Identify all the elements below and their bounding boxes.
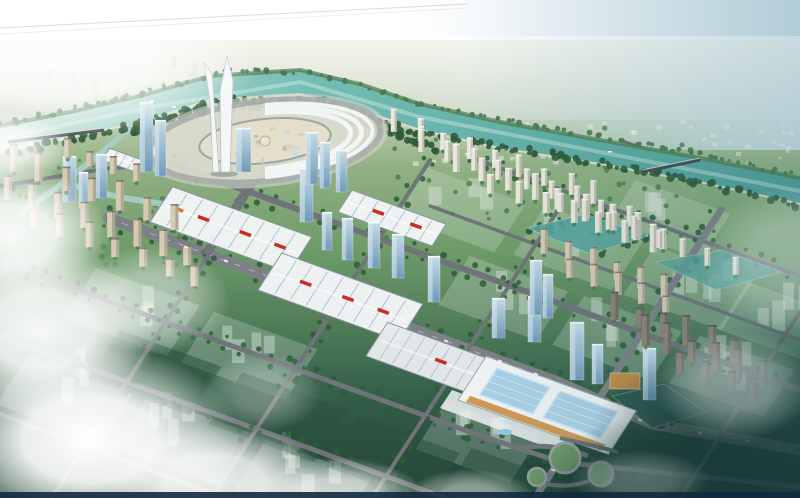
plaza-building <box>265 129 270 133</box>
street-tree <box>341 389 348 396</box>
bank-tree <box>359 82 363 86</box>
tower-lit-face <box>96 154 100 198</box>
street-tree <box>464 274 470 280</box>
bank-tree <box>292 72 295 75</box>
tower-lit-face <box>322 212 326 250</box>
bank-tree <box>342 79 348 85</box>
bank-tree <box>412 131 418 137</box>
tower-roof <box>86 151 93 153</box>
city-rendering <box>0 0 800 498</box>
bank-tree <box>309 71 312 74</box>
tower-shade <box>422 129 424 152</box>
street-tree <box>333 448 339 454</box>
tower-roof <box>391 109 397 111</box>
bank-tree <box>282 71 287 76</box>
bank-tree <box>418 101 424 107</box>
tower-shade <box>395 109 397 132</box>
street-tree <box>404 413 408 417</box>
screenshot <box>0 0 800 498</box>
street-tree <box>319 339 323 343</box>
street-tree <box>256 346 261 351</box>
bank-tree <box>395 131 405 141</box>
tower-cap <box>320 142 330 144</box>
plaza-building <box>284 145 293 149</box>
street-tree <box>220 346 225 351</box>
street-tree <box>285 430 290 435</box>
tower-roof <box>440 133 446 135</box>
bank-tree <box>433 104 436 107</box>
street-tree <box>391 452 397 458</box>
street-tree <box>362 252 366 256</box>
plaza-building <box>254 135 258 138</box>
tree <box>384 235 389 240</box>
plaza-building <box>269 144 278 148</box>
tree <box>78 159 81 162</box>
street-tree <box>292 201 295 204</box>
tower-cap <box>342 218 353 220</box>
street-tree <box>407 402 412 407</box>
tower-roof <box>159 229 167 231</box>
ghost-building <box>429 187 442 205</box>
street-tree <box>404 183 409 188</box>
tower-shade <box>112 211 115 238</box>
street-tree <box>254 200 260 206</box>
street-tree <box>420 258 424 262</box>
street-tree <box>430 162 434 166</box>
plaza-building <box>298 133 304 136</box>
tower-lit-face <box>342 218 346 260</box>
street-tree <box>326 325 332 331</box>
bank-tree <box>428 142 435 149</box>
tower-shade <box>114 156 117 174</box>
street-tree <box>401 439 405 443</box>
street-tree <box>394 196 399 201</box>
street-tree <box>412 241 416 245</box>
yard-tree <box>135 181 139 185</box>
street-tree <box>425 248 428 251</box>
tower-shade <box>175 204 178 230</box>
tower-cap <box>236 128 251 130</box>
cloud <box>202 352 322 432</box>
tower-lit-face <box>306 132 311 184</box>
street-tree <box>426 399 430 403</box>
street-tree <box>107 205 113 211</box>
tower-roof <box>116 180 124 182</box>
plaza-building <box>270 127 276 131</box>
bank-tree <box>327 76 333 82</box>
plaza-building <box>293 151 299 156</box>
tower-roof <box>453 144 460 146</box>
tower-cap <box>79 172 88 174</box>
bank-tree <box>456 138 461 143</box>
yard-tree <box>118 210 122 214</box>
street-tree <box>437 407 440 410</box>
street-tree <box>356 394 359 397</box>
plaza-building <box>258 129 265 134</box>
tower-lit-face <box>368 222 373 268</box>
street-tree <box>401 458 406 463</box>
plaza-building <box>254 138 258 141</box>
tree <box>434 138 438 142</box>
street-tree <box>426 324 429 327</box>
tree <box>453 190 457 194</box>
yard-tree <box>392 132 396 136</box>
tower-shade <box>91 151 94 166</box>
tower-roof <box>110 156 117 158</box>
bank-tree <box>447 108 450 111</box>
tower-shade <box>138 219 141 247</box>
tower-cap <box>322 212 332 214</box>
street-tree <box>464 435 471 442</box>
tree <box>395 174 400 179</box>
bank-tree <box>405 130 410 135</box>
street-tree <box>405 202 411 208</box>
street-tree <box>457 259 461 263</box>
bank-tree <box>368 88 371 91</box>
tree <box>392 146 397 151</box>
boat <box>420 126 424 128</box>
tower-shade <box>138 163 141 181</box>
tower-lit-face <box>320 142 324 188</box>
bank-tree <box>427 131 433 137</box>
street-tree <box>253 278 258 283</box>
tower-roof <box>143 197 151 199</box>
bank-tree <box>263 67 269 73</box>
tower-lit-face <box>392 234 397 278</box>
tower-lit-face <box>428 256 433 302</box>
street-tree <box>444 391 447 394</box>
street-tree <box>118 230 124 236</box>
bank-tree <box>320 73 323 76</box>
street-tree <box>407 424 413 430</box>
street-tree <box>211 255 217 261</box>
tower-cap <box>306 132 318 134</box>
street-tree <box>314 442 319 447</box>
tower-lit-face <box>300 168 305 222</box>
plaza-building <box>284 130 290 135</box>
tower-roof <box>134 219 142 221</box>
tower-roof <box>170 204 178 206</box>
plaza-building <box>268 154 274 160</box>
tree <box>201 250 205 254</box>
tower-cap <box>368 222 380 224</box>
street-tree <box>376 390 380 394</box>
bank-tree <box>441 107 444 110</box>
bank-tree <box>394 94 399 99</box>
tower-cap <box>96 154 107 156</box>
plaza-center-dome <box>260 136 270 146</box>
tree <box>451 212 454 215</box>
tree <box>427 178 432 183</box>
bank-tree <box>457 109 460 112</box>
yard-tree <box>172 230 176 234</box>
street-tree <box>422 156 427 161</box>
tower-roof <box>418 129 424 131</box>
tower-shade <box>448 141 450 162</box>
tower-shade <box>121 180 124 211</box>
yard-tree <box>145 220 149 224</box>
bank-tree <box>380 90 385 95</box>
tower-lit-face <box>336 150 340 192</box>
bank-tree <box>415 101 418 104</box>
bank-tree <box>405 98 409 102</box>
tower-cap <box>428 256 440 258</box>
street-tree <box>361 270 366 275</box>
tower-cap <box>336 150 347 152</box>
street-tree <box>225 335 228 338</box>
tower-cap <box>392 234 404 236</box>
street-tree <box>408 445 414 451</box>
ghost-building <box>264 336 275 353</box>
street-tree <box>269 206 275 212</box>
street-tree <box>451 271 457 277</box>
street-tree <box>405 256 408 259</box>
street-tree <box>313 366 319 372</box>
bank-tree <box>432 148 439 155</box>
cloud <box>70 245 230 355</box>
tower-roof <box>88 178 96 180</box>
tower-roof <box>444 141 450 143</box>
street-tree <box>317 320 322 325</box>
street-tree <box>299 436 305 442</box>
plaza-building <box>293 146 300 150</box>
street-tree <box>244 204 249 209</box>
tower-shade <box>457 144 460 172</box>
tower-roof <box>111 238 119 240</box>
tower-lit-face <box>236 128 242 172</box>
street-tree <box>433 423 436 426</box>
tower-roof <box>133 163 140 165</box>
plaza-building <box>261 157 264 163</box>
tree <box>177 234 182 239</box>
tower-roof <box>418 118 424 120</box>
tower-roof <box>107 211 115 213</box>
street-tree <box>154 225 157 228</box>
street-tree <box>451 418 456 423</box>
tower-shade <box>148 197 151 221</box>
bottom-edge-band <box>0 492 800 498</box>
